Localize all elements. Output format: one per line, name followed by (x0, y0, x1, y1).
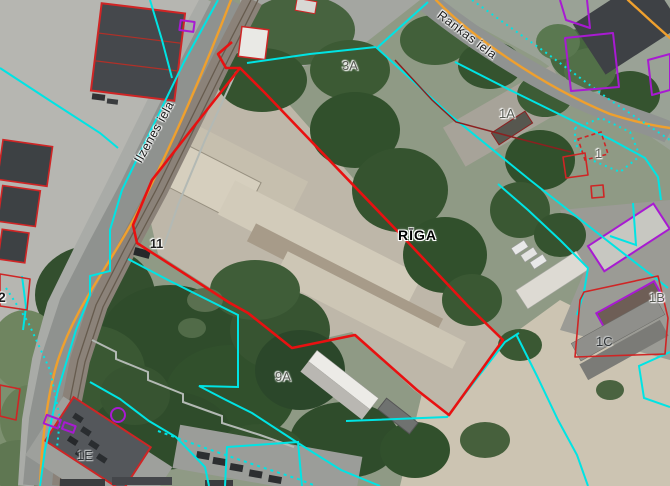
parcel-label-9a: 9A (275, 369, 291, 384)
city-label: RĪGA (398, 227, 437, 243)
parcel-label-1: 1 (595, 146, 602, 161)
parcel-label-3a: 3A (342, 58, 358, 73)
aerial-map-canvas (0, 0, 670, 486)
parcel-label-11: 11 (150, 237, 163, 251)
building-topleft (91, 3, 185, 101)
parcel-label-1b: 1B (649, 290, 665, 305)
parcel-label-1c: 1C (596, 334, 613, 349)
map-viewport[interactable]: RĪGA Ilzenes iela Rankas iela 3A 1A 1 11… (0, 0, 670, 486)
parcel-label-1a: 1A (499, 106, 515, 121)
parcel-label-1e: 1E (77, 448, 93, 463)
parcel-label-2: 2 (0, 289, 6, 305)
